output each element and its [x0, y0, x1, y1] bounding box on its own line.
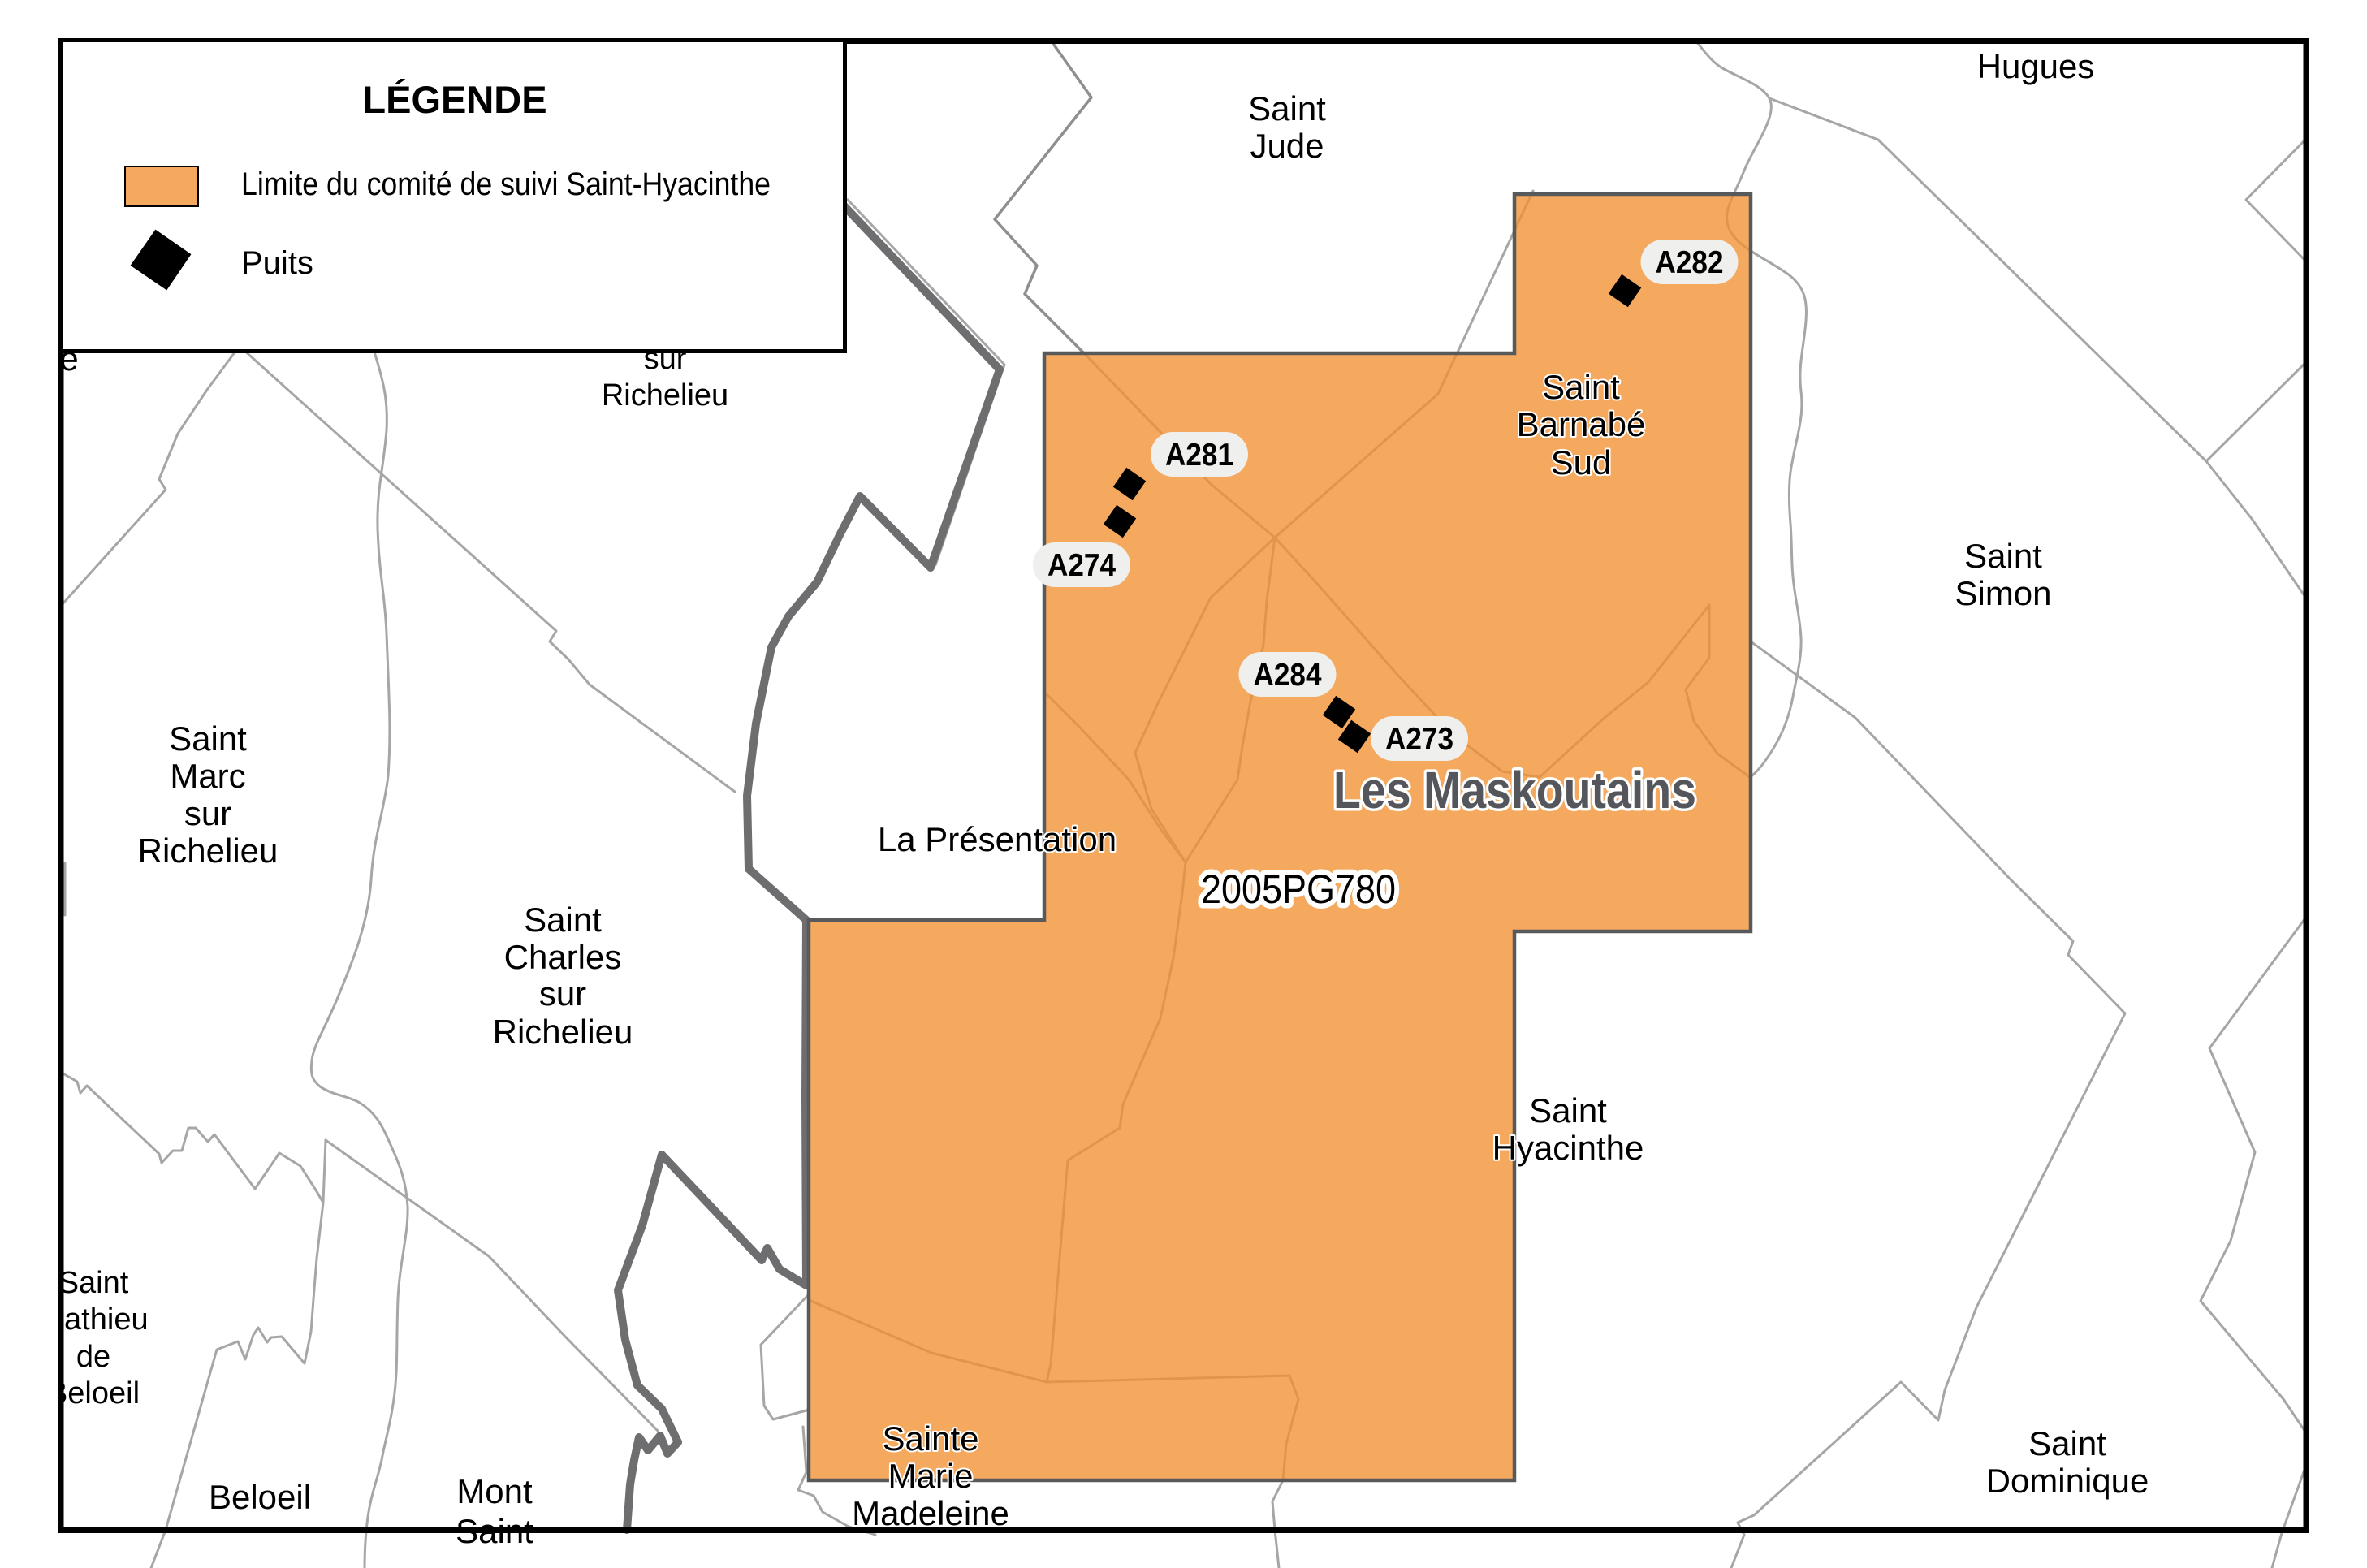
svg-text:Richelieu: Richelieu	[602, 378, 728, 413]
svg-text:Saint: Saint	[2028, 1424, 2106, 1462]
svg-text:Jude: Jude	[1250, 127, 1324, 165]
svg-text:Beloeil: Beloeil	[209, 1478, 311, 1516]
svg-text:A282: A282	[1656, 245, 1724, 280]
svg-text:Hyacinthe: Hyacinthe	[1492, 1129, 1644, 1167]
svg-text:Limite du comité de suivi Sain: Limite du comité de suivi Saint-Hyacinth…	[241, 166, 771, 202]
svg-text:Charles: Charles	[504, 938, 622, 976]
svg-text:Saint: Saint	[1529, 1091, 1607, 1130]
svg-text:Saint: Saint	[58, 1266, 129, 1300]
svg-text:Saint: Saint	[524, 901, 602, 939]
svg-text:Saint: Saint	[1542, 368, 1620, 406]
svg-text:2005PG780: 2005PG780	[1201, 866, 1396, 912]
svg-text:Hugues: Hugues	[1977, 47, 2095, 85]
svg-text:sur: sur	[539, 974, 586, 1013]
svg-text:Sainte: Sainte	[882, 1419, 978, 1458]
svg-text:Mont: Mont	[456, 1472, 533, 1510]
svg-text:Sud: Sud	[1551, 443, 1612, 482]
svg-text:A281: A281	[1165, 438, 1233, 473]
svg-text:Dominique: Dominique	[1986, 1462, 2149, 1500]
svg-text:Richelieu: Richelieu	[138, 832, 279, 870]
svg-text:sur: sur	[184, 794, 231, 832]
svg-text:Saint: Saint	[1964, 537, 2042, 575]
svg-text:Simon: Simon	[1955, 574, 2051, 612]
svg-text:LÉGENDE: LÉGENDE	[362, 78, 546, 121]
svg-text:A273: A273	[1385, 722, 1453, 757]
svg-text:Saint: Saint	[1248, 89, 1326, 127]
svg-text:Madeleine: Madeleine	[852, 1494, 1009, 1532]
svg-text:Richelieu: Richelieu	[493, 1013, 633, 1051]
svg-text:Puits: Puits	[241, 245, 313, 281]
svg-text:Saint: Saint	[169, 719, 247, 758]
svg-text:Marc: Marc	[170, 757, 245, 795]
svg-text:La Présentation: La Présentation	[878, 820, 1117, 858]
svg-text:Marie: Marie	[888, 1457, 973, 1495]
svg-text:A274: A274	[1047, 548, 1116, 583]
svg-text:Les Maskoutains: Les Maskoutains	[1333, 761, 1696, 819]
svg-text:A284: A284	[1254, 658, 1322, 693]
svg-text:de: de	[76, 1340, 110, 1374]
svg-text:Barnabé: Barnabé	[1517, 405, 1646, 443]
